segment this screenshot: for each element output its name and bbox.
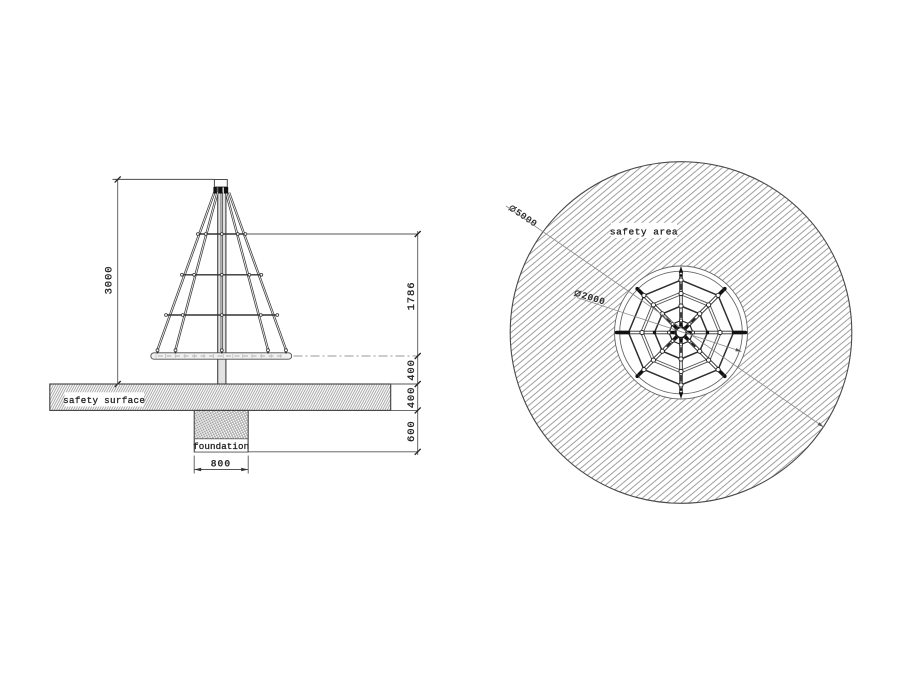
svg-text:400: 400 [406, 359, 418, 381]
svg-text:foundation: foundation [193, 441, 249, 452]
svg-text:600: 600 [406, 420, 418, 442]
svg-text:safety surface: safety surface [63, 395, 145, 406]
svg-text:3000: 3000 [104, 266, 116, 295]
svg-text:400: 400 [406, 387, 418, 409]
svg-text:1786: 1786 [406, 282, 418, 311]
svg-text:800: 800 [211, 460, 231, 471]
svg-text:safety area: safety area [610, 226, 678, 237]
